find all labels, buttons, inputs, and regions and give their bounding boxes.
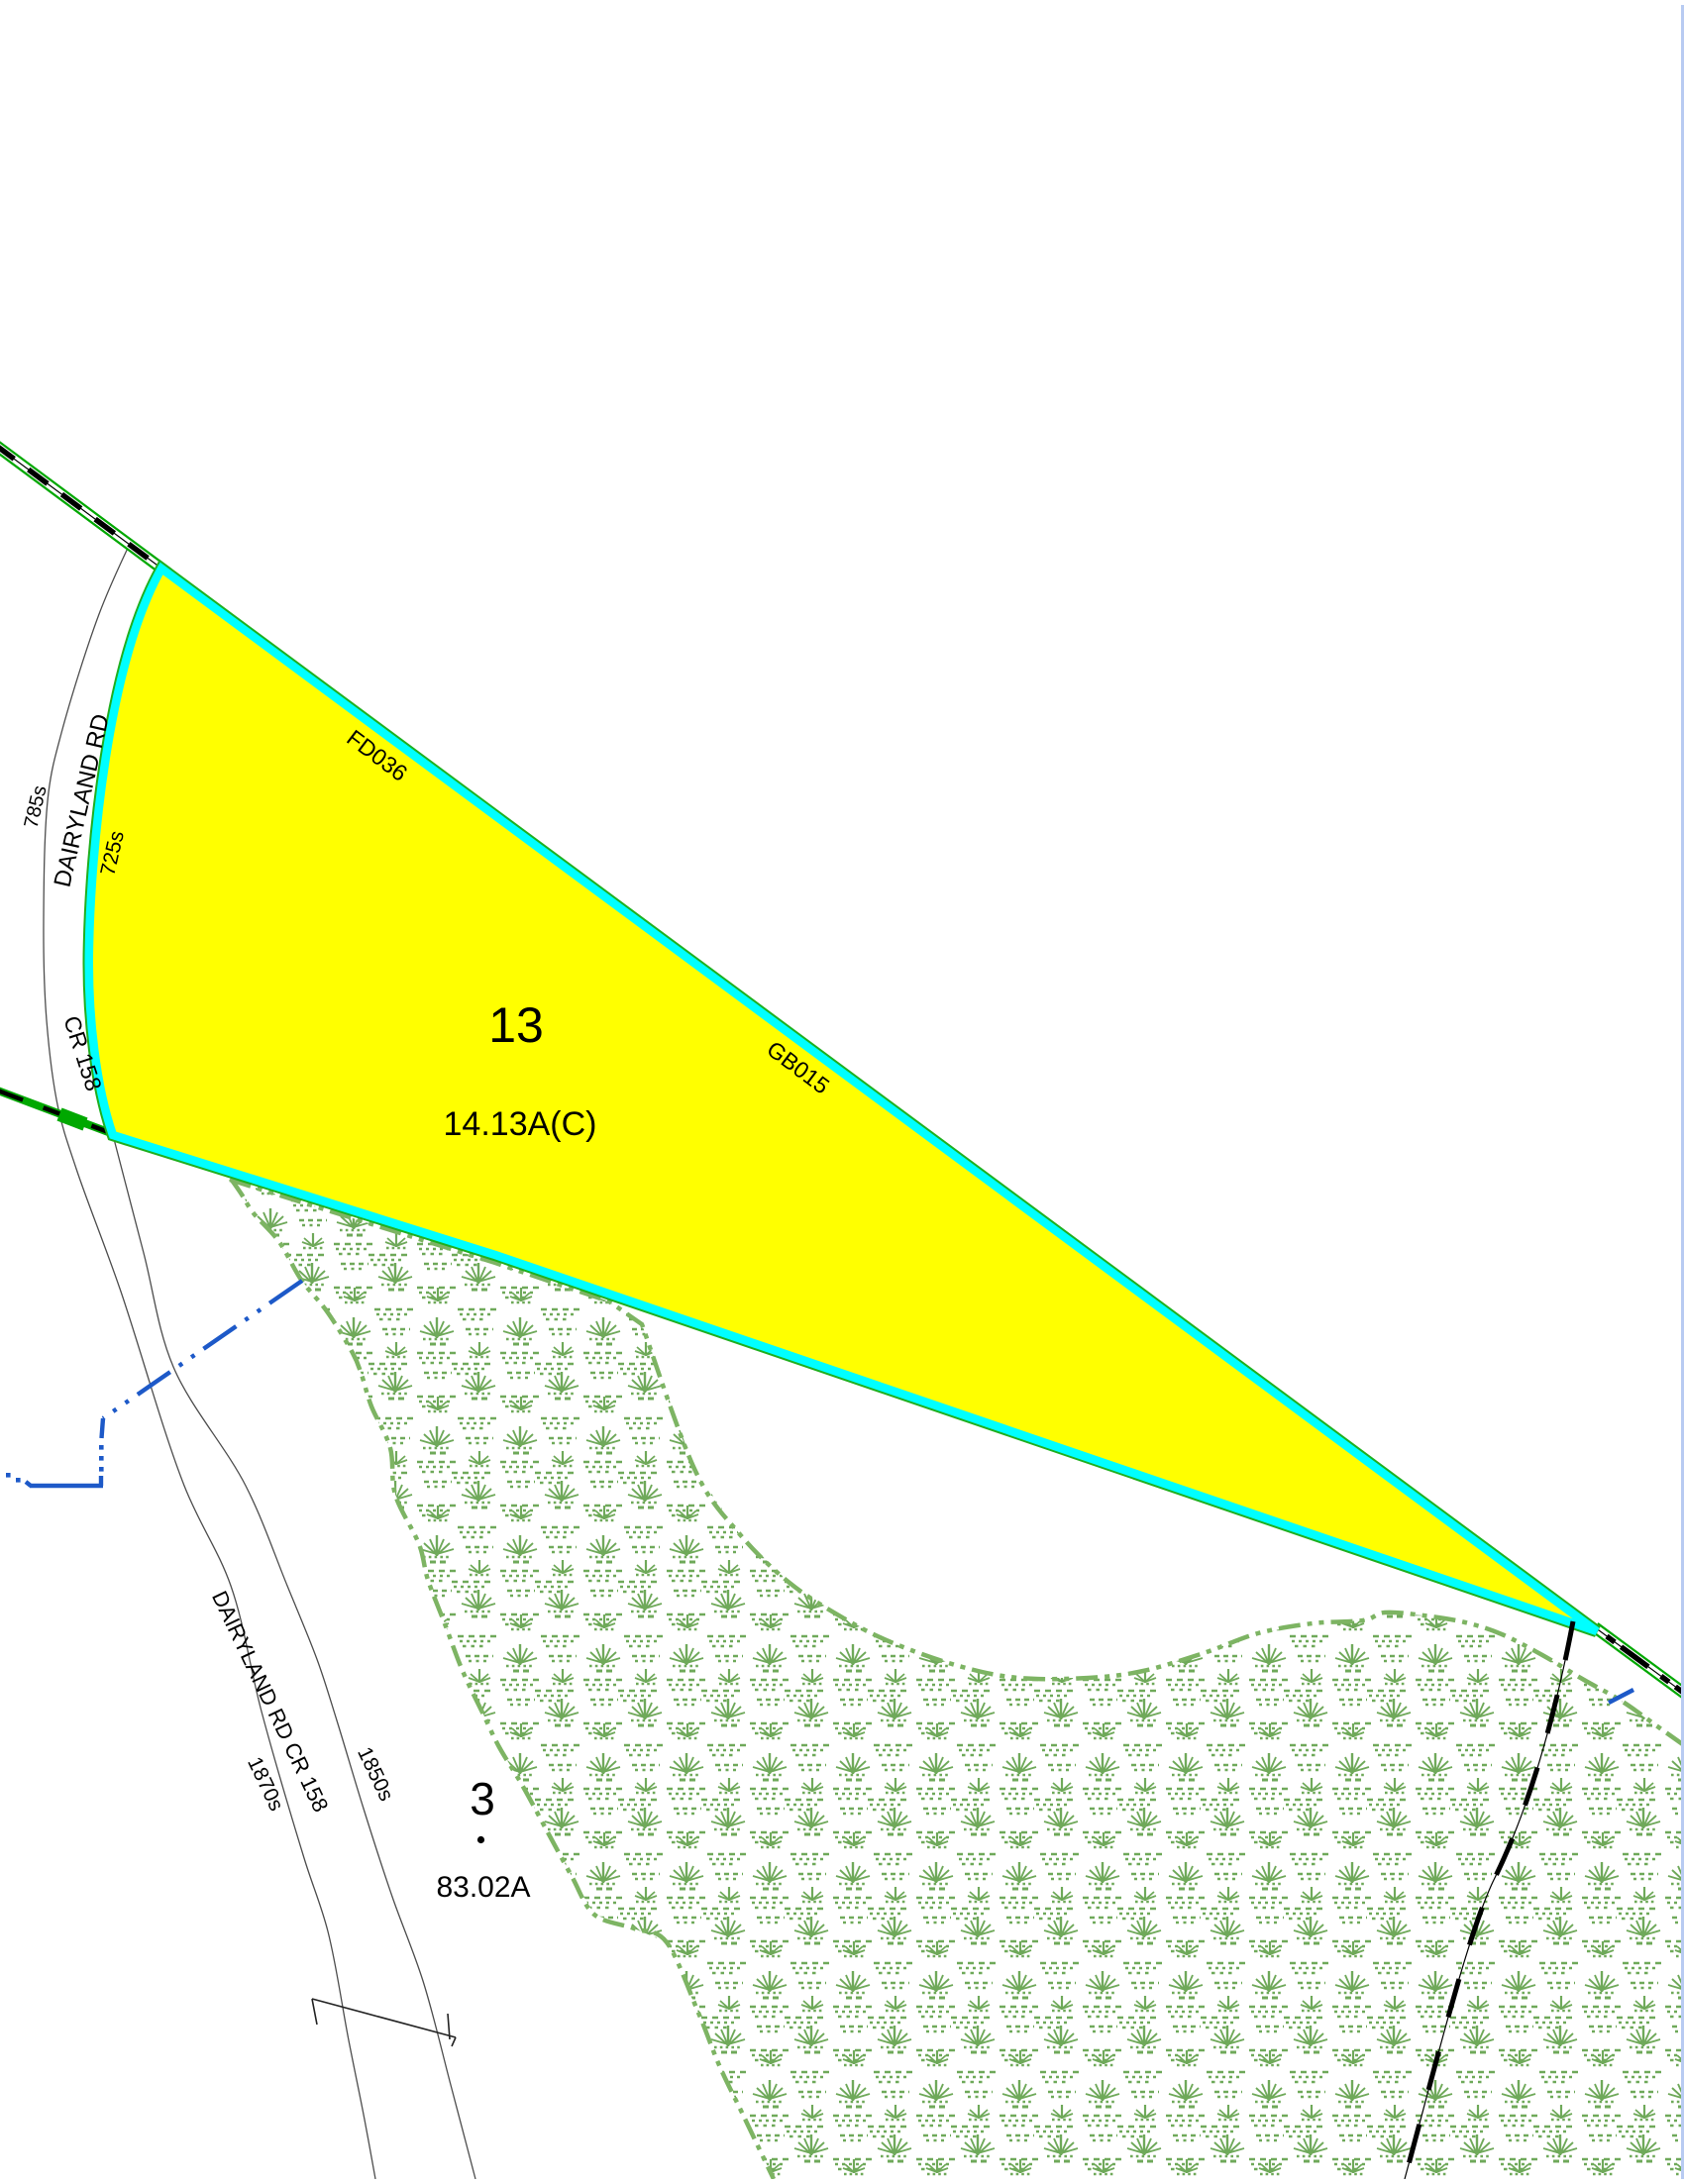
svg-text:14.13A(C): 14.13A(C) xyxy=(444,1105,597,1143)
svg-text:3: 3 xyxy=(470,1773,495,1824)
svg-text:83.02A: 83.02A xyxy=(436,1871,530,1904)
svg-text:13: 13 xyxy=(488,997,544,1053)
